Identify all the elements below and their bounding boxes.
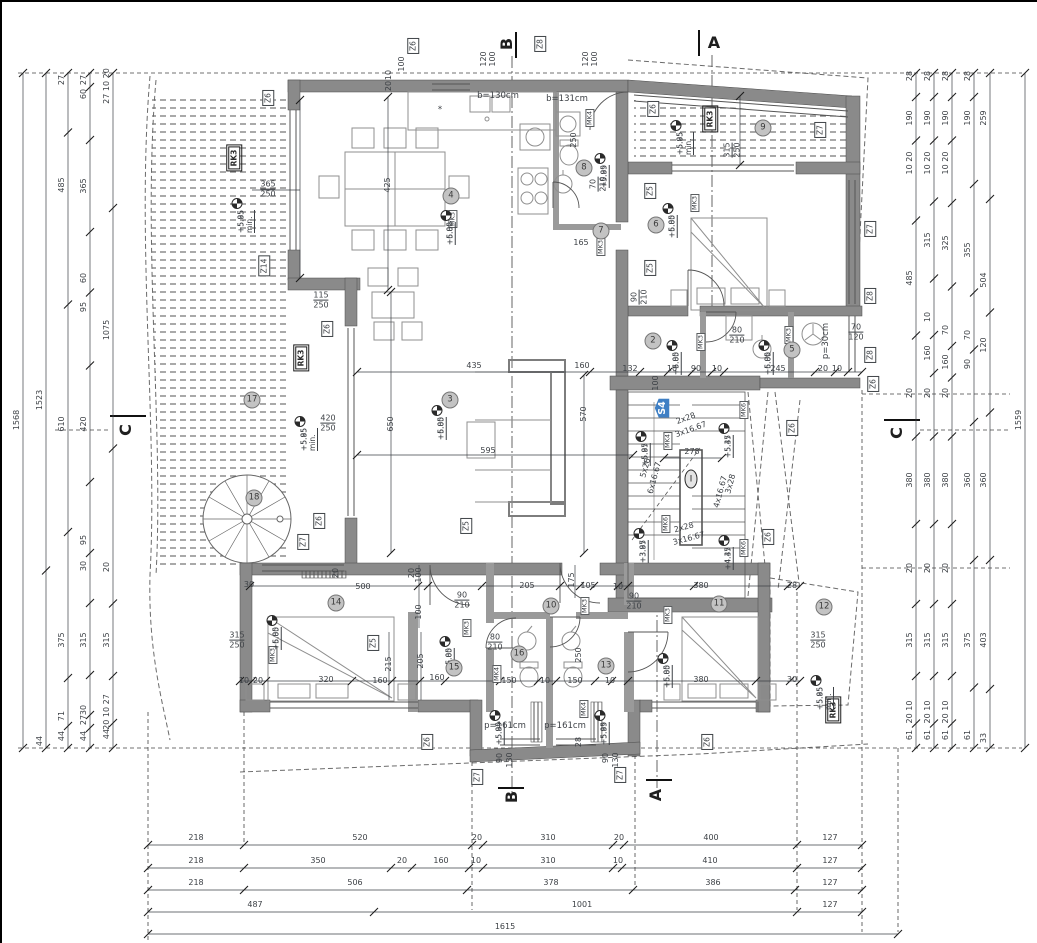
dimension-value: 210 [487, 642, 502, 652]
dimension-value: 210 [454, 600, 469, 610]
room-number-bubble: 6 [648, 217, 665, 234]
dimension: 28 [575, 737, 583, 747]
level-value-bottom: +5.85 [300, 428, 308, 451]
room-number-bubble: 18 [246, 490, 263, 507]
chain-dimension: 360 [980, 472, 988, 487]
chain-dimension: 44 [58, 731, 66, 741]
section-marker: B [499, 38, 515, 50]
dimension: 500 [355, 583, 370, 591]
dimension: 115250 [313, 292, 328, 311]
stair-tag: S4 [655, 398, 670, 417]
chain-dimension: 485 [906, 270, 914, 285]
window-tag: Z7 [614, 767, 626, 783]
row-dimension: 127 [822, 879, 837, 887]
window-tag: Z8 [534, 36, 546, 52]
chain-dimension: 20 [924, 388, 932, 398]
dimension: 245 [770, 365, 785, 373]
dimension: 320 [318, 676, 333, 684]
chain-dimension: 610 [58, 416, 66, 431]
dimension: 425 [384, 177, 392, 192]
chain-dimension: 315 [924, 632, 932, 647]
chain-dimension: 380 [906, 472, 914, 487]
chain-dimension: 70 [942, 325, 950, 335]
chain-dimension: 315 [924, 232, 932, 247]
chain-dimension: 20 [924, 563, 932, 573]
dimension: 20 [408, 568, 416, 578]
dimension-value: 250 [810, 640, 825, 650]
level-symbol-icon [719, 535, 730, 546]
dimension: 10 [540, 677, 550, 685]
chain-dimension: 28 [942, 71, 950, 81]
chain-dimension: 315 [103, 632, 111, 647]
chain-dimension: 20 [906, 563, 914, 573]
rk-tag: RK3 [295, 347, 307, 370]
dimension: 132 [622, 365, 637, 373]
level-marker: +6.00+5.85 [759, 340, 770, 352]
level-symbol-icon [441, 210, 452, 221]
level-value-bottom: +5.85 [816, 687, 824, 710]
dimension: 250 [575, 647, 583, 662]
mk-tag: MK4 [579, 700, 588, 718]
dimension-value: 365 [260, 181, 275, 189]
dimension: 365250 [260, 181, 275, 200]
dimension: 100 [415, 604, 423, 619]
mk-tag: MK4 [663, 432, 672, 450]
annotation-note: p=161cm [484, 722, 526, 731]
row-dimension: 20 [614, 834, 624, 842]
chain-dimension: 44 [80, 731, 88, 741]
room-number-bubble: 2 [645, 333, 662, 350]
level-symbol-icon [667, 340, 678, 351]
window-tag: Z6 [321, 321, 333, 337]
level-value-bottom: +5.85 [272, 627, 280, 650]
dimension: 150 [567, 677, 582, 685]
level-value-bottom: +5.85 [663, 665, 671, 688]
mk-tag: MK4 [492, 665, 501, 683]
level-symbol-icon [595, 710, 606, 721]
dimension: 105 [580, 582, 595, 590]
dimension: 80210 [729, 327, 744, 346]
room-number-bubble: 14 [328, 595, 345, 612]
room-number-bubble: 17 [244, 392, 261, 409]
room-number-bubble: 12 [816, 599, 833, 616]
level-symbol-icon [658, 653, 669, 664]
window-tag: Z14 [258, 256, 270, 277]
chain-dimension: 20 10 [942, 701, 950, 724]
chain-dimension: 10 20 [924, 152, 932, 175]
room-number-bubble: 5 [784, 342, 801, 359]
dimension-value: 315 [229, 632, 244, 640]
level-symbol-icon [490, 710, 501, 721]
dimension: 10 [832, 365, 842, 373]
level-symbol-icon [432, 405, 443, 416]
room-number-bubble: 11 [711, 596, 728, 613]
level-symbol-icon [663, 203, 674, 214]
row-dimension: 160 [433, 857, 448, 865]
row-dimension: 410 [702, 857, 717, 865]
row-dimension: 20 [397, 857, 407, 865]
dimension: 100 [652, 375, 660, 390]
row-dimension: 1615 [495, 923, 515, 931]
chain-dimension: 10 20 [906, 152, 914, 175]
row-dimension: 127 [822, 834, 837, 842]
dimension: 250 [570, 132, 578, 147]
dimension: 165 [573, 239, 588, 247]
window-tag: Z6 [786, 420, 798, 436]
dimension: 10 [613, 583, 623, 591]
chain-dimension: 20 10 [906, 701, 914, 724]
chain-dimension: 61 [942, 730, 950, 740]
chain-dimension: 30 [80, 561, 88, 571]
level-value-bottom: +5.85 [676, 132, 684, 155]
chain-dimension: 61 [924, 730, 932, 740]
level-symbol-icon [440, 636, 451, 647]
chain-dimension: 27 [80, 75, 88, 85]
chain-dimension: 380 [942, 472, 950, 487]
dimension: 70120 [848, 324, 863, 343]
dimension: 10 [605, 677, 615, 685]
level-marker: +3.97+3.85 [634, 528, 645, 540]
chain-dimension: 365 [80, 178, 88, 193]
dimension: 130 [506, 752, 514, 767]
level-marker: +6.00+5.85 [663, 203, 674, 215]
row-dimension: 10 [613, 857, 623, 865]
row-dimension: 127 [822, 901, 837, 909]
room-number-bubble: 10 [543, 598, 560, 615]
level-marker: +5.97+5.85 [636, 431, 647, 443]
chain-dimension: 315 [80, 632, 88, 647]
chain-dimension: 33 [980, 733, 988, 743]
chain-dimension: 95 [80, 302, 88, 312]
dimension: 205 [519, 582, 534, 590]
dimension-value: 120 [848, 332, 863, 342]
window-tag: Z5 [644, 260, 656, 276]
mk-tag: MK3 [462, 619, 471, 637]
chain-dimension: 20 [942, 563, 950, 573]
chain-dimension: 380 [924, 472, 932, 487]
chain-dimension: 160 [942, 354, 950, 369]
dimension: 30 [787, 676, 797, 684]
level-marker: +6.00+5.85 [658, 653, 669, 665]
dimension: 150 [501, 677, 516, 685]
chain-dimension: 1523 [36, 390, 44, 410]
chain-dimension: 28 [906, 71, 914, 81]
chain-dimension: 28 [964, 71, 972, 81]
chain-dimension: 27 10 20 [103, 68, 111, 104]
dimension-value: 420 [320, 415, 335, 423]
dimension: 160 [372, 677, 387, 685]
dimension: 80210 [487, 634, 502, 653]
window-tag: Z7 [814, 122, 826, 138]
room-number-bubble: 15 [446, 660, 463, 677]
level-marker: +6.00+5.85 [440, 636, 451, 648]
dimension: 20 [385, 81, 393, 91]
mk-tag: MK3 [663, 606, 672, 624]
section-marker: C [118, 424, 134, 436]
dimension: 20 [253, 677, 263, 685]
level-marker: +5.95 min.+5.85 [811, 675, 822, 687]
chain-dimension: 160 [924, 345, 932, 360]
chain-dimension: 61 [964, 730, 972, 740]
chain-dimension: 360 [964, 472, 972, 487]
dimension: 90210 [454, 592, 469, 611]
row-dimension: 218 [188, 857, 203, 865]
chain-dimension: 27 [80, 715, 88, 725]
row-dimension: 20 [472, 834, 482, 842]
mk-tag: MK3 [696, 333, 705, 351]
dimension-value: 250 [732, 142, 742, 157]
room-number-bubble: 13 [598, 658, 615, 675]
level-symbol-icon [719, 423, 730, 434]
chain-dimension: 20 [906, 388, 914, 398]
chain-dimension: 27 [58, 75, 66, 85]
level-marker: +6.00+5.85 [441, 210, 452, 222]
chain-dimension: 60 [80, 89, 88, 99]
chain-dimension: 403 [980, 632, 988, 647]
chain-dimension: 1559 [1015, 410, 1023, 430]
level-symbol-icon [671, 120, 682, 131]
dimension: 70210 [590, 176, 609, 191]
dimension: 380 [693, 582, 708, 590]
chain-dimension: 1568 [13, 410, 21, 430]
mk-tag: MK3 [580, 597, 589, 615]
level-marker: +5.99+5.85 [595, 153, 606, 165]
chain-dimension: 325 [942, 235, 950, 250]
dimension: 278 [684, 448, 699, 456]
chain-dimension: 70 [964, 330, 972, 340]
level-marker: +5.95 min.+5.85 [232, 198, 243, 210]
row-dimension: 10 [471, 857, 481, 865]
row-dimension: 378 [543, 879, 558, 887]
chain-dimension: 61 [906, 730, 914, 740]
level-value-bottom: +5.85 [437, 417, 445, 440]
window-tag: Z5 [367, 635, 379, 651]
rk-tag: RK3 [704, 108, 716, 131]
chain-dimension: 60 [80, 273, 88, 283]
level-value-bottom: +5.85 [237, 210, 245, 233]
room-number-bubble: 16 [511, 646, 528, 663]
dimension: 570 [580, 406, 588, 421]
row-dimension: 127 [822, 857, 837, 865]
row-dimension: 506 [347, 879, 362, 887]
dimension: 90 [602, 753, 610, 763]
dimension: 215 [385, 656, 393, 671]
chain-dimension: 315 [906, 632, 914, 647]
dimension: 315250 [724, 142, 743, 157]
dimension: 380 [693, 676, 708, 684]
dimension: 100 [398, 56, 406, 71]
row-dimension: 487 [247, 901, 262, 909]
level-marker: +5.95 min.+5.85 [671, 120, 682, 132]
dimension-value: 250 [320, 423, 335, 433]
chain-dimension: 259 [980, 110, 988, 125]
window-tag: Z6 [701, 734, 713, 750]
chain-dimension: 10 20 [942, 152, 950, 175]
chain-dimension: 44 [103, 729, 111, 739]
level-symbol-icon [811, 675, 822, 686]
level-symbol-icon [759, 340, 770, 351]
level-marker: +5.99+5.85 [595, 710, 606, 722]
dimension: 20 [818, 365, 828, 373]
dimension: 20 [332, 568, 340, 578]
dimension: 90210 [626, 593, 641, 612]
dimension: 175 [568, 572, 576, 587]
window-tag: Z6 [407, 38, 419, 54]
mk-tag: MK6 [739, 401, 748, 419]
level-value-bottom: +3.85 [639, 540, 647, 563]
chain-dimension: 485 [58, 177, 66, 192]
dimension: 90 [691, 365, 701, 373]
mk-tag: MK3 [690, 194, 699, 212]
dimension: 420250 [320, 415, 335, 434]
window-tag: Z5 [644, 183, 656, 199]
row-dimension: 310 [540, 857, 555, 865]
dimension-value: 250 [229, 640, 244, 650]
window-tag: Z6 [647, 101, 659, 117]
annotation-note: p=161cm [544, 722, 586, 731]
dimension: 90210 [631, 289, 650, 304]
dimension: 10 [239, 677, 249, 685]
mk-tag: MK6 [661, 515, 670, 533]
chain-dimension: 504 [980, 272, 988, 287]
dimension-value: 90 [457, 592, 467, 600]
chain-dimension: 190 [942, 110, 950, 125]
window-tag: Z8 [864, 288, 876, 304]
window-tag: Z7 [471, 769, 483, 785]
level-symbol-icon [267, 615, 278, 626]
chain-dimension: 28 [924, 71, 932, 81]
chain-dimension: 420 [80, 416, 88, 431]
dimension: 100 [489, 51, 497, 66]
window-tag: Z6 [867, 376, 879, 392]
chain-dimension: 95 [80, 535, 88, 545]
row-dimension: 310 [540, 834, 555, 842]
window-tag: Z5 [460, 518, 472, 534]
level-symbol-icon [295, 416, 306, 427]
level-symbol-icon [595, 153, 606, 164]
level-symbol-icon [634, 528, 645, 539]
dimension: 10 [712, 365, 722, 373]
level-marker: +6.00+5.85 [432, 405, 443, 417]
dimension-value: 315 [724, 142, 732, 157]
level-marker: +5.47+5.35 [719, 423, 730, 435]
level-value-bottom: +5.85 [446, 222, 454, 245]
chain-dimension: 44 [36, 736, 44, 746]
room-number-bubble: 7 [593, 223, 610, 240]
chain-dimension: 20 [942, 388, 950, 398]
dimension-value: 70 [851, 324, 861, 332]
chain-dimension: 375 [58, 632, 66, 647]
level-value-bottom: +4.35 [724, 547, 732, 570]
section-marker: C [889, 427, 905, 439]
chain-dimension: 20 10 27 [103, 694, 111, 730]
dimension-value: 210 [598, 176, 608, 191]
row-dimension: 386 [705, 879, 720, 887]
window-tag: Z7 [864, 221, 876, 237]
window-tag: Z6 [421, 734, 433, 750]
dimension-value: 90 [631, 292, 639, 302]
annotation-note: p=30cm [822, 323, 831, 359]
level-symbol-icon [636, 431, 647, 442]
room-number-bubble: 8 [576, 160, 593, 177]
dimension: 315250 [810, 632, 825, 651]
chain-dimension: 375 [964, 632, 972, 647]
dimension: 30 [244, 581, 254, 589]
rk-tag: RK3 [228, 147, 240, 170]
room-number-bubble: 4 [443, 188, 460, 205]
annotation-note: b=130cm [477, 92, 519, 101]
chain-dimension: 315 [942, 632, 950, 647]
dimension: 315250 [229, 632, 244, 651]
mk-tag: MK3 [596, 238, 605, 256]
row-dimension: 400 [703, 834, 718, 842]
level-value-bottom: +5.85 [668, 215, 676, 238]
window-tag: Z6 [262, 90, 274, 106]
chain-dimension: 10 [924, 312, 932, 322]
dimension: 28 [787, 582, 797, 590]
chain-dimension: 120 [980, 337, 988, 352]
chain-dimension: 190 [964, 110, 972, 125]
section-marker: A [648, 789, 664, 801]
dimension: 160 [429, 674, 444, 682]
section-marker: B [504, 791, 520, 803]
row-dimension: 1001 [572, 901, 592, 909]
row-dimension: 350 [310, 857, 325, 865]
dimension-value: 70 [590, 179, 598, 189]
floor-plan-sheet: Z6Z8Z6Z14Z6Z6Z7Z5Z6Z7Z5Z5Z7Z8Z8Z6Z6Z6Z5Z… [0, 0, 1037, 943]
chain-dimension: 190 [924, 110, 932, 125]
chain-dimension: 20 [103, 562, 111, 572]
level-marker: +6.00+5.85 [667, 340, 678, 352]
window-tag: Z7 [297, 534, 309, 550]
window-tag: Z6 [762, 529, 774, 545]
dimension: 205 [417, 653, 425, 668]
annotation-note: * [438, 106, 442, 115]
room-number-bubble: 3 [442, 392, 459, 409]
level-marker: +5.95 min.+5.85 [295, 416, 306, 428]
dimension: 130 [612, 752, 620, 767]
dimension: 10 [667, 365, 677, 373]
dimension-value: 80 [732, 327, 742, 335]
level-value-bottom: +5.35 [724, 435, 732, 458]
dimension: 90 [496, 753, 504, 763]
chain-dimension: 30 [80, 705, 88, 715]
section-marker: A [708, 35, 720, 51]
level-value-bottom: +5.85 [600, 722, 608, 745]
dimension: 100 [591, 51, 599, 66]
dimension: 595 [480, 447, 495, 455]
room-number-bubble: 9 [755, 120, 772, 137]
dimension: 435 [466, 362, 481, 370]
window-tag: Z8 [864, 347, 876, 363]
dimension-value: 90 [629, 593, 639, 601]
row-dimension: 218 [188, 834, 203, 842]
chain-dimension: 20 10 [924, 701, 932, 724]
chain-dimension: 90 [964, 359, 972, 369]
mk-tag: MK4 [585, 109, 594, 127]
annotation-note: b=131cm [546, 95, 588, 104]
dimension-value: 210 [639, 289, 649, 304]
dimension-value: 210 [729, 335, 744, 345]
mk-tag: MK6 [739, 539, 748, 557]
dimension: 160 [574, 362, 589, 370]
dimension: 10 [385, 70, 393, 80]
row-dimension: 520 [352, 834, 367, 842]
chain-dimension: 355 [964, 242, 972, 257]
dimension-value: 80 [490, 634, 500, 642]
dimension-value: 315 [810, 632, 825, 640]
dimension-value: 115 [313, 292, 328, 300]
